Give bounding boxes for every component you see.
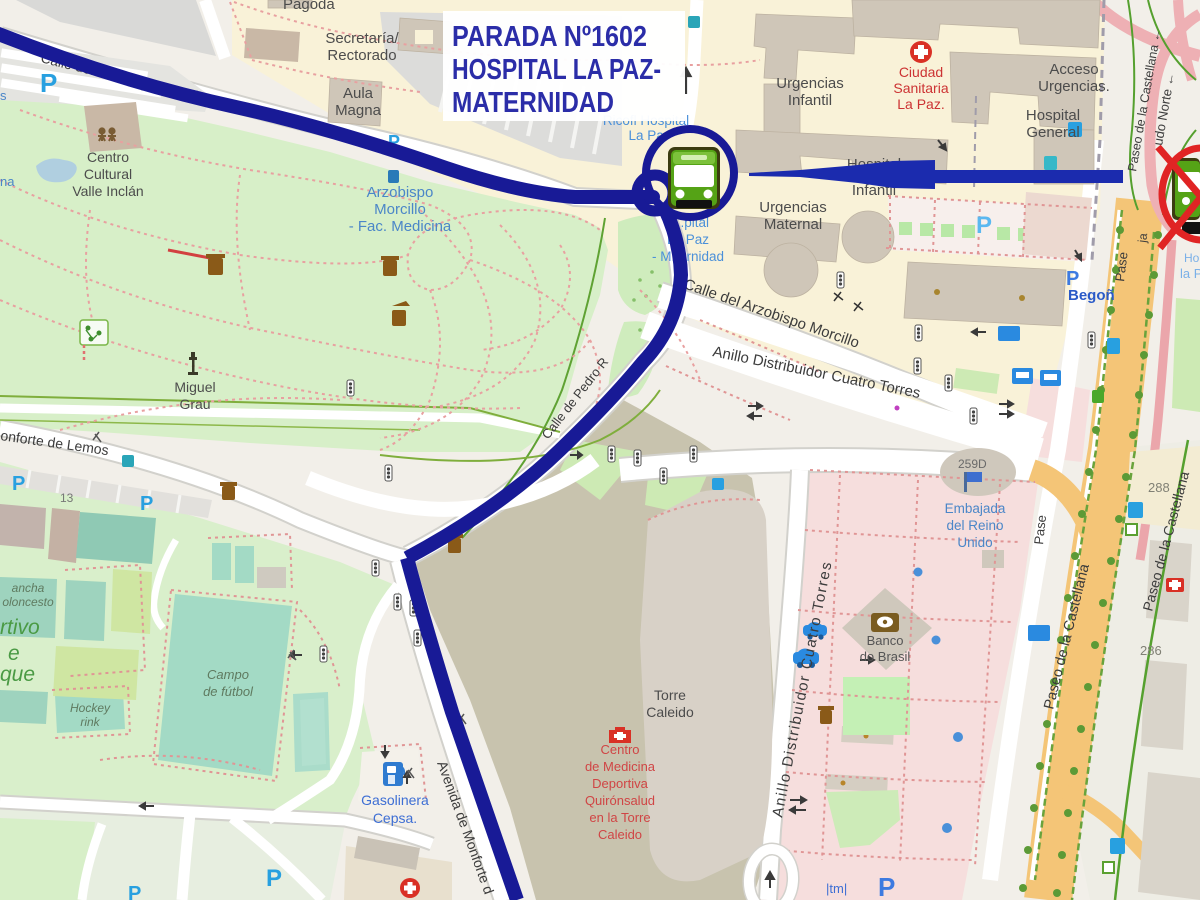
svg-text:288: 288 <box>1148 480 1170 495</box>
svg-text:P: P <box>40 68 57 98</box>
svg-text:la P: la P <box>1180 266 1200 281</box>
svg-text:13: 13 <box>60 491 74 505</box>
svg-text:Deportiva: Deportiva <box>592 776 648 791</box>
svg-text:Campo: Campo <box>207 667 249 682</box>
svg-text:Caleido: Caleido <box>598 827 642 842</box>
svg-text:P: P <box>878 872 895 900</box>
svg-text:286: 286 <box>1140 643 1162 658</box>
svg-text:P: P <box>128 883 141 900</box>
svg-text:Centro: Centro <box>87 149 129 165</box>
svg-text:Miguel: Miguel <box>174 379 215 395</box>
svg-text:do Brasil: do Brasil <box>860 649 911 664</box>
svg-text:de fútbol: de fútbol <box>203 684 254 699</box>
svg-text:- M..ernidad: - M..ernidad <box>652 249 724 264</box>
svg-text:Urgencias: Urgencias <box>776 75 844 92</box>
svg-text:ancha: ancha <box>12 581 45 595</box>
svg-text:Unido: Unido <box>957 535 992 550</box>
svg-text:rtivo: rtivo <box>0 616 40 639</box>
svg-text:P: P <box>266 865 282 892</box>
svg-text:PARADA Nº1602: PARADA Nº1602 <box>452 21 647 53</box>
svg-text:de Medicina: de Medicina <box>585 759 656 774</box>
svg-text:s: s <box>0 88 7 103</box>
svg-text:Urgencias: Urgencias <box>759 199 827 216</box>
svg-text:Grau: Grau <box>179 396 210 412</box>
svg-text:Gasolinera: Gasolinera <box>361 792 429 808</box>
svg-text:General: General <box>1026 124 1079 141</box>
svg-text:Acceso: Acceso <box>1049 61 1098 78</box>
svg-text:Begoñ: Begoñ <box>1068 287 1115 304</box>
svg-text:P: P <box>12 473 25 495</box>
svg-text:Morcillo: Morcillo <box>374 201 426 218</box>
svg-text:Aula: Aula <box>343 85 374 102</box>
svg-text:Arzobispo: Arzobispo <box>367 184 434 201</box>
svg-text:Ho: Ho <box>1184 251 1200 265</box>
svg-text:Torre: Torre <box>654 687 686 703</box>
svg-text:HOSPITAL LA PAZ-: HOSPITAL LA PAZ- <box>452 54 661 86</box>
svg-text:Banco: Banco <box>867 633 904 648</box>
svg-text:oloncesto: oloncesto <box>2 595 54 609</box>
svg-text:rink: rink <box>80 715 100 729</box>
svg-text:MATERNIDAD: MATERNIDAD <box>452 87 614 119</box>
svg-text:Valle Inclán: Valle Inclán <box>72 183 143 199</box>
svg-text:Embajada: Embajada <box>945 501 1006 516</box>
svg-text:259D: 259D <box>958 457 987 471</box>
svg-text:La Paz.: La Paz. <box>897 96 944 112</box>
svg-text:Centro: Centro <box>600 742 639 757</box>
svg-text:P: P <box>140 493 153 515</box>
svg-text:P: P <box>976 212 992 239</box>
svg-text:Cultural: Cultural <box>84 166 132 182</box>
svg-text:Quirónsalud: Quirónsalud <box>585 793 655 808</box>
svg-text:Pase: Pase <box>1031 514 1049 545</box>
svg-text:na: na <box>0 174 15 189</box>
svg-text:e: e <box>8 642 20 665</box>
svg-text:Caleido: Caleido <box>646 704 694 720</box>
svg-text:que: que <box>0 663 35 686</box>
svg-text:Rectorado: Rectorado <box>327 47 396 64</box>
svg-text:Sanitaria: Sanitaria <box>893 80 948 96</box>
svg-text:Urgencias.: Urgencias. <box>1038 78 1110 95</box>
svg-text:Ciudad: Ciudad <box>899 64 943 80</box>
svg-text:ja: ja <box>1135 232 1150 244</box>
svg-text:Magna: Magna <box>335 102 382 119</box>
svg-text:Cepsa.: Cepsa. <box>373 810 417 826</box>
svg-text:Hospital: Hospital <box>1026 107 1080 124</box>
svg-text:Hockey: Hockey <box>70 701 111 715</box>
svg-text:- Fac. Medicina: - Fac. Medicina <box>349 218 452 235</box>
svg-text:Maternal: Maternal <box>764 216 822 233</box>
svg-text:Infantil: Infantil <box>788 92 832 109</box>
svg-text:del Reino: del Reino <box>946 518 1003 533</box>
svg-text:en la Torre: en la Torre <box>589 810 650 825</box>
svg-text:Pagoda: Pagoda <box>283 0 335 13</box>
svg-text:|tm|: |tm| <box>826 881 847 896</box>
svg-text:Secretaría/: Secretaría/ <box>325 30 399 47</box>
